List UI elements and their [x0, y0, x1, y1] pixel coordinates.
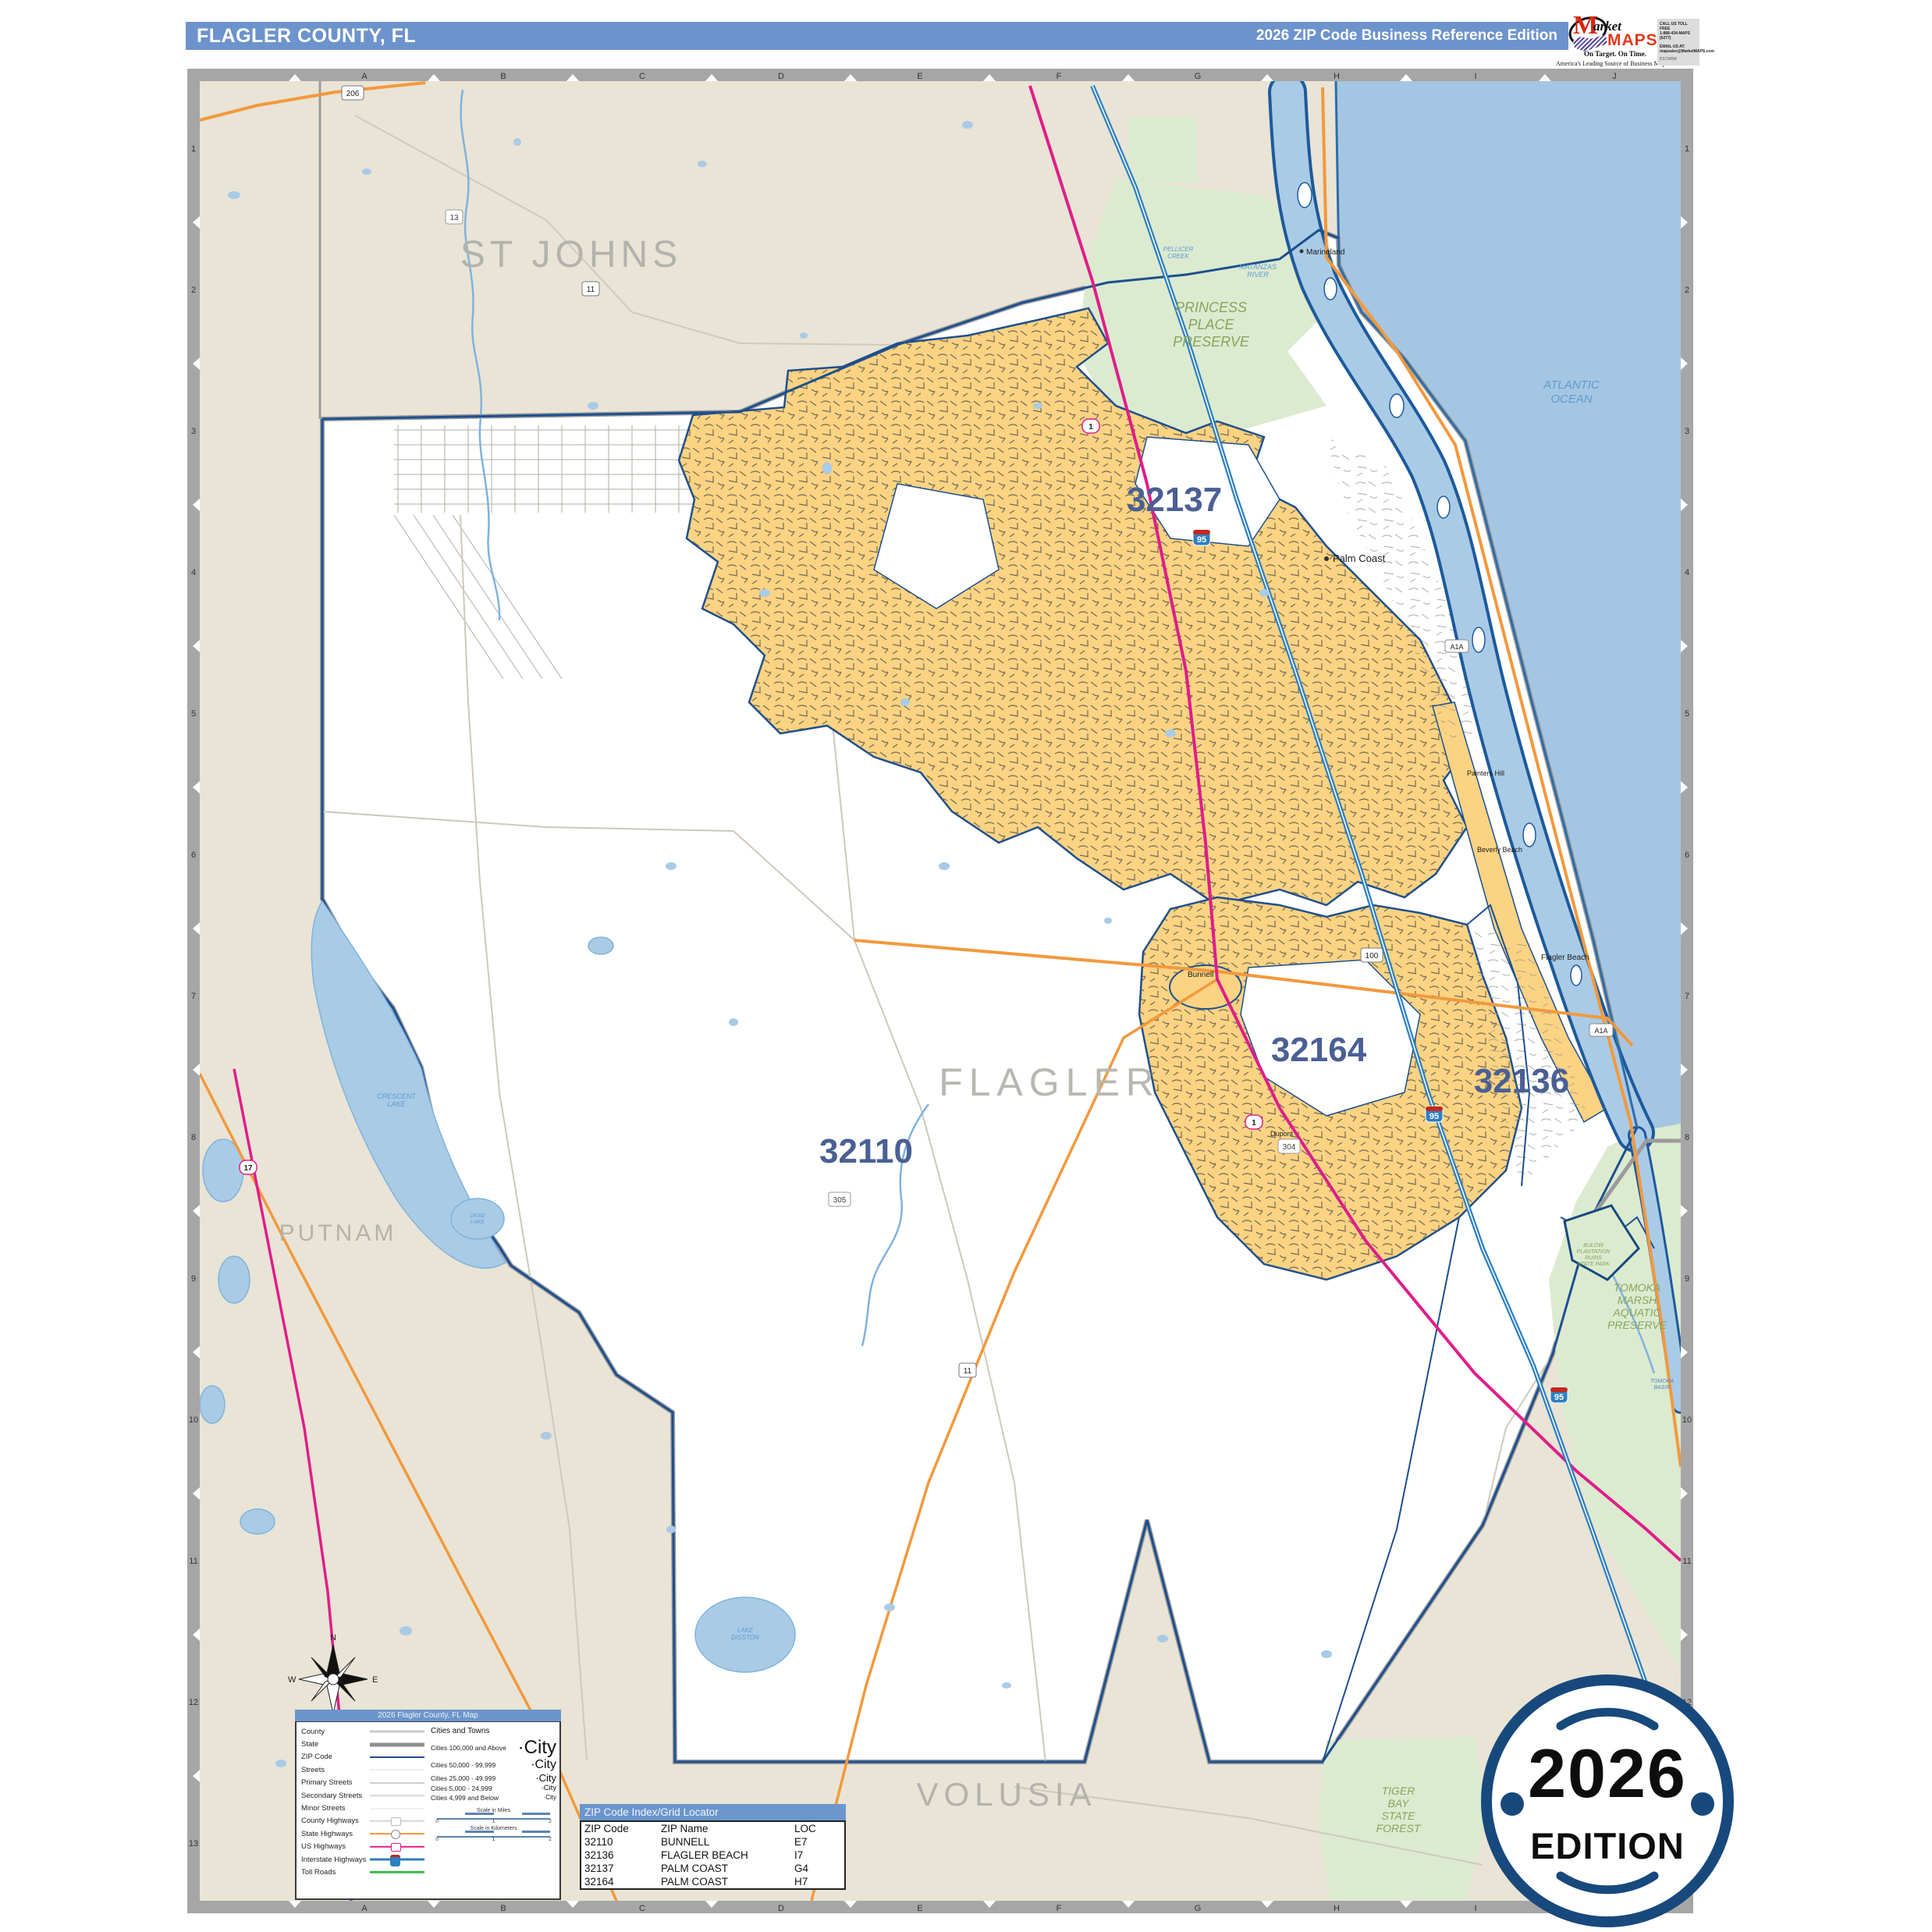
interstate-shield: 95 — [1426, 1106, 1443, 1122]
tiger-bay-label: TIGERBAYSTATEFOREST — [1376, 1785, 1422, 1834]
grid-row-right-8: 8 — [1685, 1133, 1689, 1142]
grid-row-2: 2 — [191, 286, 196, 295]
zip-table-row: 32136FLAGLER BEACHI7 — [581, 1849, 845, 1862]
grid-row-9: 9 — [191, 1274, 196, 1284]
grid-row-right-6: 6 — [1685, 851, 1689, 860]
grid-col-bottom-E: E — [917, 1904, 922, 1913]
legend-item-primary: Primary Streets — [301, 1777, 431, 1789]
a1a-shield: A1A — [1589, 1024, 1613, 1036]
a1a-shield: A1A — [1445, 640, 1469, 652]
grid-col-bottom-H: H — [1334, 1904, 1340, 1913]
legend-item-secondary: Secondary Streets — [301, 1789, 431, 1802]
zip-32164-label: 32164 — [1271, 1031, 1367, 1069]
legend-city-class: Cities 50,000 - 99,999·City — [431, 1759, 556, 1771]
zip-table-row: 32164PALM COASTH7 — [581, 1875, 845, 1889]
pond — [228, 191, 240, 199]
product-code: D17345M — [1660, 57, 1697, 62]
grid-col-H: H — [1334, 72, 1340, 81]
flagler-beach-label: Flagler Beach — [1541, 954, 1589, 962]
grid-row-1: 1 — [191, 144, 196, 154]
zip-32137-label: 32137 — [1127, 481, 1222, 519]
marketmaps-logo: M arket MAPS On Target. On Time. America… — [1567, 12, 1656, 72]
edition-badge: 2026 EDITION — [1481, 1675, 1734, 1927]
pond — [666, 1525, 676, 1533]
pond — [1259, 589, 1269, 597]
pond — [1002, 1682, 1011, 1689]
pond — [884, 1603, 895, 1611]
state-road-shield: 11 — [959, 1363, 976, 1377]
grid-col-bottom-G: G — [1195, 1904, 1202, 1913]
contact-call-label: CALL US TOLL FREE — [1660, 22, 1697, 31]
grid-row-13: 13 — [189, 1839, 198, 1849]
grid-row-12: 12 — [189, 1698, 198, 1707]
grid-row-right-1: 1 — [1685, 144, 1689, 154]
grid-row-right-4: 4 — [1685, 568, 1689, 577]
grid-row-right-11: 11 — [1682, 1557, 1691, 1566]
grid-col-G: G — [1195, 72, 1202, 81]
legend-shield-icon — [390, 1855, 400, 1866]
zip-table-row: 32137PALM COASTG4 — [581, 1862, 845, 1875]
dead-lake-label: DEADLAKE — [470, 1213, 485, 1225]
grid-col-F: F — [1057, 72, 1062, 81]
svg-text:A1A: A1A — [1594, 1027, 1607, 1035]
svg-text:95: 95 — [1197, 535, 1206, 545]
pond — [400, 1626, 412, 1635]
svg-text:17: 17 — [243, 1164, 253, 1173]
state-park-area — [1128, 117, 1198, 183]
svg-text:304: 304 — [1283, 1143, 1296, 1152]
legend-item-minor: Minor Streets — [301, 1802, 431, 1814]
legend-item-us_hwy: US Highways — [301, 1841, 431, 1853]
legend-title: 2026 Flagler County, FL Map — [295, 1710, 561, 1721]
palm-coast-label: Palm Coast — [1333, 552, 1386, 564]
svg-text:95: 95 — [1429, 1112, 1439, 1121]
legend-item-county: County — [301, 1725, 431, 1738]
st-johns-label: ST JOHNS — [460, 234, 682, 275]
logo-tagline: On Target. On Time. — [1584, 50, 1646, 58]
legend-road-column: CountyStateZIP CodeStreetsPrimary Street… — [297, 1722, 431, 1879]
pond — [759, 589, 770, 597]
pond — [513, 138, 521, 146]
grid-col-bottom-A: A — [361, 1904, 368, 1913]
grid-row-right-2: 2 — [1685, 286, 1689, 295]
flagler-label: FLAGLER — [939, 1060, 1160, 1104]
grid-row-3: 3 — [191, 427, 196, 436]
svg-text:A1A: A1A — [1450, 643, 1463, 651]
header-bar: FLAGLER COUNTY, FL 2026 ZIP Code Busines… — [186, 22, 1568, 50]
pond — [698, 161, 707, 167]
us-route-shield: 1 — [1082, 419, 1099, 433]
scale-kilometers: Scale in Kilometers 012 — [431, 1826, 556, 1838]
grid-row-5: 5 — [191, 709, 196, 719]
pond — [1104, 918, 1112, 924]
compass-e: E — [372, 1675, 378, 1685]
svg-text:305: 305 — [833, 1196, 847, 1205]
pond — [1321, 1650, 1332, 1658]
zip-table-row: 32110BUNNELLE7 — [581, 1835, 845, 1849]
tomoka-marsh-label: TOMOKAMARSHAQUATICPRESERVE — [1607, 1281, 1667, 1331]
dupont-label: Dupont — [1270, 1130, 1294, 1138]
painters-hill-label: Painters Hill — [1467, 769, 1504, 777]
pond — [1165, 730, 1176, 737]
compass-n: N — [330, 1633, 336, 1643]
legend-cities-header: Cities and Towns — [431, 1727, 556, 1735]
grid-row-4: 4 — [191, 568, 196, 577]
grid-row-right-7: 7 — [1685, 992, 1689, 1001]
grid-row-right-9: 9 — [1685, 1274, 1689, 1284]
logo-maps-text: MAPS — [1607, 31, 1658, 50]
putnam-label: PUTNAM — [279, 1220, 397, 1246]
grid-col-bottom-D: D — [778, 1904, 784, 1913]
marineland-label: Marineland — [1306, 248, 1344, 257]
interstate-shield: 95 — [1193, 530, 1210, 545]
svg-text:11: 11 — [587, 286, 595, 294]
pond — [900, 698, 910, 706]
legend-shield-icon — [391, 1843, 401, 1852]
svg-text:13: 13 — [449, 214, 459, 222]
interstate-shield: 95 — [1550, 1387, 1568, 1403]
grid-row-right-3: 3 — [1685, 427, 1689, 436]
svg-text:95: 95 — [1554, 1393, 1564, 1402]
contact-box: CALL US TOLL FREE 1-888-434-MAPS (6277) … — [1657, 19, 1699, 66]
grid-col-B: B — [500, 72, 506, 81]
pond — [800, 332, 808, 339]
county-road-shield: 304 — [1278, 1139, 1300, 1153]
badge-edition: EDITION — [1492, 1824, 1723, 1867]
pond — [1033, 403, 1042, 409]
pond — [1157, 1635, 1168, 1643]
legend-item-state: State — [301, 1738, 431, 1750]
state-road-shield: 206 — [342, 86, 364, 100]
legend-shield-icon — [391, 1830, 400, 1839]
legend-item-st_hwy: State Highways — [301, 1827, 431, 1840]
pond — [939, 862, 950, 870]
grid-col-bottom-C: C — [639, 1904, 645, 1913]
pond — [362, 169, 371, 175]
svg-text:1: 1 — [1252, 1119, 1256, 1128]
pond — [541, 1432, 552, 1440]
zip-table-header-row: ZIP CodeZIP NameLOC — [581, 1821, 845, 1835]
grid-col-J: J — [1612, 72, 1617, 81]
grid-row-right-5: 5 — [1685, 709, 1689, 719]
legend-cities-column: Cities and Towns Cities 100,000 and Abov… — [431, 1722, 559, 1879]
zip-32110-label: 32110 — [819, 1132, 913, 1170]
edition-subtitle: 2026 ZIP Code Business Reference Edition — [1256, 27, 1557, 44]
map-legend: 2026 Flagler County, FL Map CountyStateZ… — [295, 1721, 561, 1900]
page-title: FLAGLER COUNTY, FL — [197, 25, 416, 48]
pond — [822, 462, 832, 474]
pond — [729, 1018, 738, 1026]
grid-row-10: 10 — [189, 1415, 198, 1425]
bunnell-label: Bunnell — [1188, 971, 1213, 979]
grid-col-E: E — [917, 72, 922, 81]
legend-item-toll: Toll Roads — [301, 1866, 431, 1878]
grid-row-11: 11 — [189, 1557, 197, 1566]
legend-item-zip: ZIP Code — [301, 1751, 431, 1763]
us-route-shield: 17 — [240, 1160, 257, 1174]
grid-col-bottom-B: B — [500, 1904, 506, 1913]
legend-city-class: Cities 4,999 and Below·City — [431, 1794, 556, 1802]
us-route-shield: 1 — [1245, 1115, 1263, 1129]
svg-text:206: 206 — [346, 90, 360, 98]
map-sheet-page: 95 95 95 1 1 17 100 11 11 206 305 304 13… — [0, 0, 1932, 1932]
legend-city-class: Cities 5,000 - 24,999·City — [431, 1785, 556, 1792]
grid-row-right-10: 10 — [1682, 1415, 1692, 1425]
badge-year: 2026 — [1492, 1734, 1723, 1813]
volusia-label: VOLUSIA — [916, 1776, 1096, 1813]
state-road-shield: 100 — [1361, 948, 1383, 962]
legend-city-class: Cities 25,000 - 49,999·City — [431, 1773, 556, 1783]
county-map-canvas: 95 95 95 1 1 17 100 11 11 206 305 304 13… — [186, 8, 1701, 1921]
grid-col-I: I — [1474, 72, 1476, 81]
svg-text:1: 1 — [1089, 423, 1093, 432]
svg-text:100: 100 — [1366, 952, 1379, 961]
compass-w: W — [288, 1675, 297, 1685]
grid-row-6: 6 — [191, 851, 196, 860]
contact-email: mapsales@MarketMAPS.com — [1660, 49, 1697, 54]
legend-item-street: Streets — [301, 1763, 431, 1776]
grid-col-bottom-F: F — [1057, 1904, 1062, 1913]
pond — [962, 121, 973, 129]
logo-subtitle: America's Leading Source of Business Map… — [1556, 60, 1667, 67]
pond — [275, 1760, 286, 1767]
legend-city-class: Cities 100,000 and Above·City — [431, 1738, 556, 1757]
grid-col-bottom-I: I — [1474, 1904, 1476, 1913]
legend-item-cty_hwy: County Highways — [301, 1815, 431, 1827]
grid-row-7: 7 — [191, 992, 196, 1001]
state-road-shield: 11 — [582, 282, 599, 296]
county-road-shield: 13 — [446, 210, 463, 224]
pond — [666, 862, 677, 870]
legend-shield-icon — [391, 1817, 401, 1826]
grid-col-D: D — [778, 72, 784, 81]
grid-row-8: 8 — [191, 1133, 196, 1142]
county-road-shield: 305 — [829, 1192, 851, 1206]
svg-text:11: 11 — [964, 1367, 972, 1376]
atlantic-ocean-label: ATLANTICOCEAN — [1543, 378, 1600, 406]
zip-32136-label: 32136 — [1474, 1062, 1569, 1100]
grid-col-A: A — [361, 72, 368, 81]
beverly-beach-label: Beverly Beach — [1477, 846, 1522, 854]
contact-phone: 1-888-434-MAPS (6277) — [1660, 31, 1697, 41]
pond — [588, 402, 598, 410]
legend-item-int_hwy: Interstate Highways — [301, 1853, 431, 1866]
grid-col-C: C — [639, 72, 645, 81]
zip-index-table: ZIP Code Index/Grid Locator ZIP CodeZIP … — [580, 1804, 846, 1890]
scale-miles: Scale in Miles 012 — [431, 1808, 556, 1820]
zip-table-title: ZIP Code Index/Grid Locator — [580, 1804, 846, 1820]
pellicer-creek-label: PELLICERCREEK — [1163, 246, 1194, 260]
